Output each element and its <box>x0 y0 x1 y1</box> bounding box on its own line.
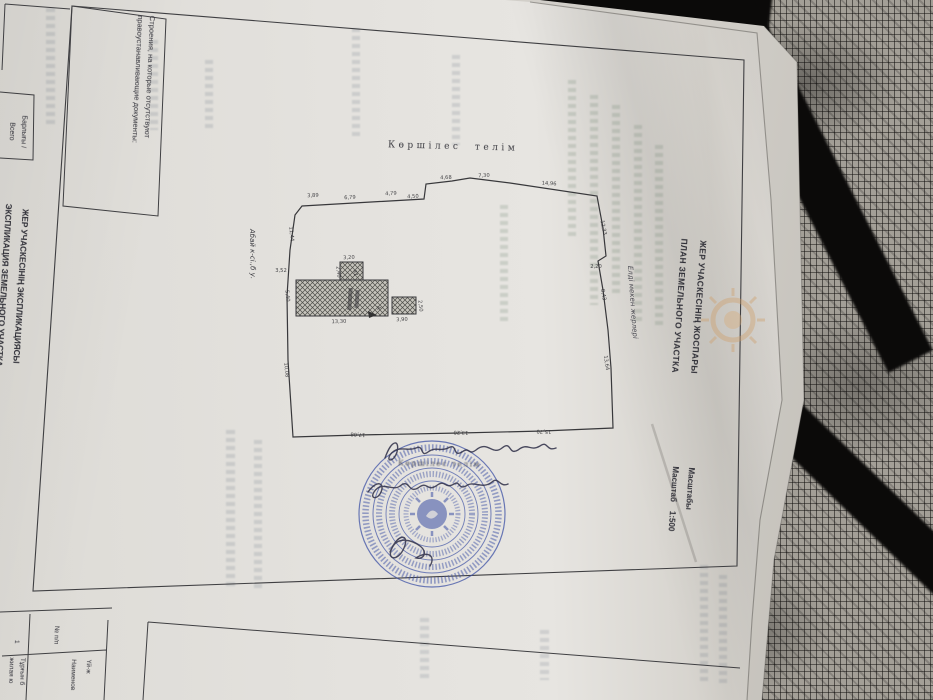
bleed-through-strip <box>590 95 598 305</box>
table-header-name: Үй-ж Наименов <box>65 659 96 691</box>
bleed-through-strip <box>254 440 262 590</box>
bleed-through-strip <box>612 105 620 295</box>
scale-block: Масштабы Масштаб1:500 <box>663 466 699 533</box>
table-cell-name-kk: Тұрғын б <box>16 658 28 686</box>
bleed-through-strip <box>226 430 235 590</box>
bleed-through-strip <box>568 80 576 240</box>
scale-value: 1:500 <box>667 511 677 532</box>
table-header-num: № п/п <box>52 626 60 645</box>
bleed-through-strip <box>634 125 642 325</box>
table-cell-name: Тұрғын б жилая ю <box>5 657 28 685</box>
photo-of-land-plan-document: 3,896,794,794,504,687,3014,9612,332,208,… <box>0 0 933 700</box>
bleed-through-strip <box>46 8 55 128</box>
totals-label: Барлығы / Всего <box>4 103 30 160</box>
bleed-through-strip <box>540 630 549 680</box>
totals-label-kk: Барлығы / <box>16 104 30 160</box>
table-cell-num: 1 <box>13 640 20 644</box>
bleed-through-strip <box>500 205 508 325</box>
totals-label-ru: Всего <box>4 103 18 159</box>
bleed-through-strip <box>352 28 360 138</box>
stamp-caption-label: Көршілес телім <box>398 458 481 468</box>
table-header-name-kk: Үй-ж <box>80 659 96 691</box>
bleed-through-strip <box>700 565 708 685</box>
table-cell-name-ru: жилая ю <box>5 657 17 685</box>
bleed-through-strip <box>452 55 460 145</box>
bleed-through-strip <box>719 575 727 685</box>
bleed-through-strip <box>205 60 213 130</box>
bleed-through-strip <box>420 618 429 678</box>
scale-label-ru: Масштаб <box>669 466 680 502</box>
table-header-name-ru: Наименов <box>65 659 81 691</box>
bleed-through-strip <box>655 145 663 325</box>
